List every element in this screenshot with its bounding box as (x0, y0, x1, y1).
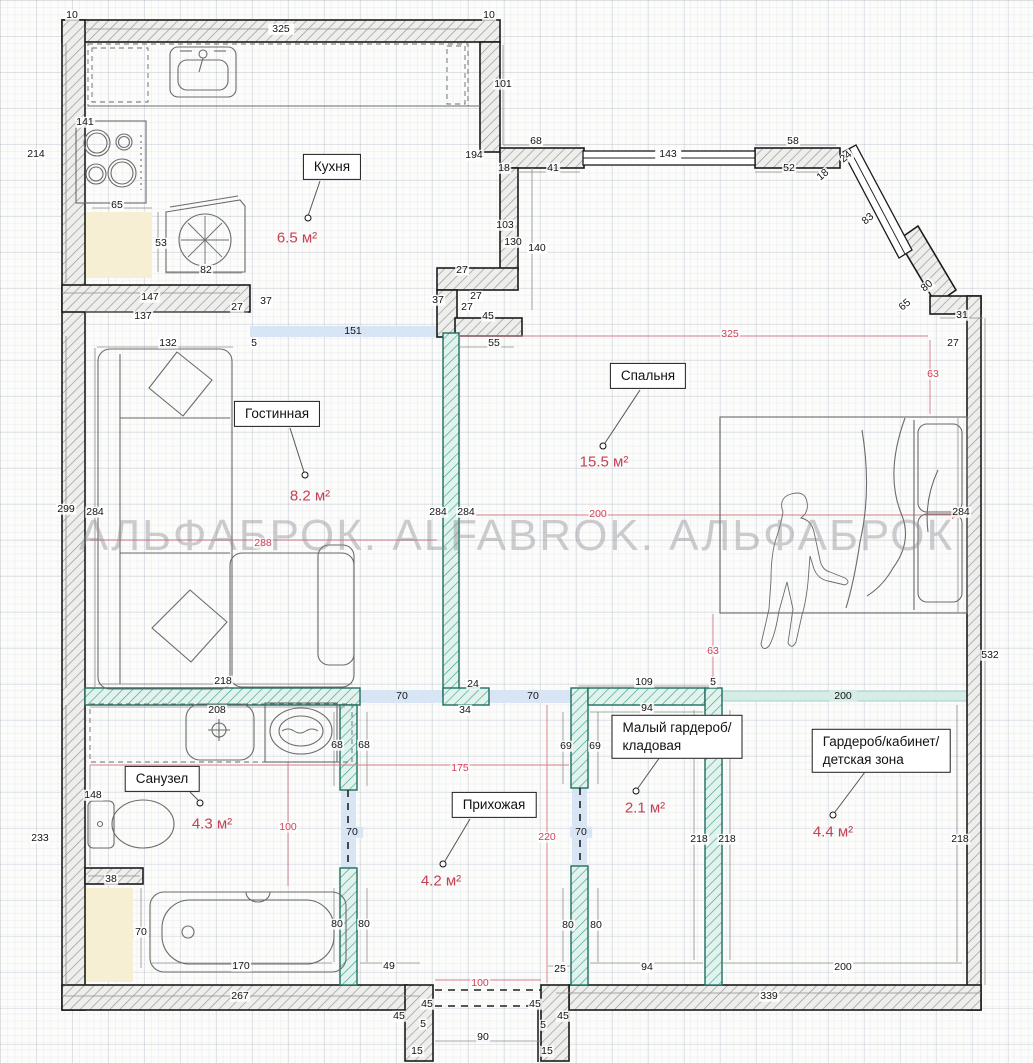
room-area-label: 6.5 м² (277, 230, 317, 247)
door-openings (348, 788, 580, 1006)
dimension-label: 5 (709, 677, 717, 688)
dimension-label: 325 (720, 329, 740, 340)
room-name-label: Кухня (303, 154, 361, 180)
diagonal-window (843, 145, 912, 258)
dimension-label: 80 (589, 920, 603, 931)
dimension-label: 94 (640, 703, 654, 714)
room-area-label: 4.4 м² (813, 824, 853, 841)
room-area-label: 2.1 м² (625, 800, 665, 817)
dimension-label: 45 (392, 1011, 406, 1022)
dimension-label: 55 (487, 338, 501, 349)
dimension-label: 15 (410, 1046, 424, 1057)
dimension-label: 109 (634, 677, 654, 688)
room-name-label: Санузел (125, 766, 200, 792)
dimension-label: 80 (330, 919, 344, 930)
dimension-label: 284 (85, 507, 105, 518)
room-name-label: Прихожая (452, 792, 537, 818)
dimension-label: 288 (253, 538, 273, 549)
floor-plan-drawing (0, 0, 1033, 1063)
dimension-label: 68 (529, 136, 543, 147)
dimension-label: 299 (56, 504, 76, 515)
dimension-label: 101 (493, 79, 513, 90)
dimension-label: 284 (456, 507, 476, 518)
dimension-label: 130 (503, 237, 523, 248)
dimension-label: 5 (419, 1019, 427, 1030)
room-name-label: Спальня (610, 363, 686, 389)
exterior-walls (62, 20, 981, 1061)
room-name-label: Гостинная (234, 401, 320, 427)
dimension-label: 38 (104, 874, 118, 885)
dimension-label: 80 (357, 919, 371, 930)
dimension-label: 27 (230, 302, 244, 313)
dimension-label: 82 (199, 265, 213, 276)
dimension-label: 27 (469, 291, 483, 302)
dimension-label: 52 (782, 163, 796, 174)
dimension-label: 45 (556, 1011, 570, 1022)
dimension-label: 214 (26, 149, 46, 160)
dimension-label: 218 (717, 834, 737, 845)
dimension-label: 200 (588, 509, 608, 520)
dimension-label: 284 (951, 507, 971, 518)
dimension-label: 200 (833, 962, 853, 973)
dimension-label: 218 (950, 834, 970, 845)
dimension-label: 45 (420, 999, 434, 1010)
dimension-label: 37 (431, 295, 445, 306)
dimension-label: 45 (481, 311, 495, 322)
dimension-label: 63 (706, 646, 720, 657)
dimension-label: 31 (955, 310, 969, 321)
dimension-label: 49 (382, 961, 396, 972)
dimension-label: 58 (786, 136, 800, 147)
stove (76, 121, 146, 203)
dimension-label: 37 (259, 296, 273, 307)
dimension-label: 70 (341, 827, 363, 838)
dimension-label: 63 (926, 369, 940, 380)
partition-walls (85, 333, 722, 985)
windows (583, 145, 912, 258)
washing-machine (265, 703, 337, 762)
dimension-label: 10 (65, 10, 79, 21)
dimension-label: 339 (759, 991, 779, 1002)
dimension-label: 147 (140, 292, 160, 303)
dimension-label: 15 (540, 1046, 554, 1057)
dimension-label: 70 (570, 827, 592, 838)
dimension-label: 170 (231, 961, 251, 972)
dimension-label: 94 (640, 962, 654, 973)
blanket (867, 418, 906, 596)
dimension-label: 233 (30, 833, 50, 844)
person-figure (761, 493, 848, 649)
dimension-label: 325 (268, 24, 294, 35)
dimension-label: 132 (158, 338, 178, 349)
dimension-label: 175 (450, 763, 470, 774)
dimension-label: 103 (495, 220, 515, 231)
floor-plan: АЛЬФАБРОК. ALFABROK. АЛЬФАБРОК Кухня6.5 … (0, 0, 1033, 1063)
dimension-label: 220 (537, 832, 557, 843)
room-leaders (190, 181, 865, 867)
dimension-label: 70 (134, 927, 148, 938)
room-area-label: 4.3 м² (192, 816, 232, 833)
room-area-label: 15.5 м² (580, 454, 629, 471)
dimension-label: 69 (588, 741, 602, 752)
dimension-label: 151 (339, 326, 367, 337)
dimension-label: 90 (476, 1032, 490, 1043)
dimension-label: 137 (133, 311, 153, 322)
dimension-label: 143 (655, 149, 681, 160)
kitchen-sink (170, 47, 236, 97)
dimension-label: 200 (829, 691, 857, 702)
dimension-label: 532 (980, 650, 1000, 661)
dimension-label: 41 (546, 163, 560, 174)
dimension-label: 27 (455, 265, 469, 276)
bed-pillow (918, 514, 962, 602)
bed-pillow (918, 424, 962, 512)
room-name-label: Малый гардероб/ кладовая (612, 715, 743, 759)
dimension-label: 53 (154, 238, 168, 249)
dimension-label: 68 (357, 740, 371, 751)
room-name-label: Гардероб/кабинет/ детская зона (812, 729, 951, 773)
dimension-label: 141 (75, 117, 95, 128)
kitchen-appliance (166, 196, 245, 272)
red-dimension-lines (90, 336, 961, 983)
toilet (88, 800, 174, 848)
dimension-label: 27 (460, 302, 474, 313)
dimension-label: 68 (330, 740, 344, 751)
dimension-label: 5 (539, 1020, 547, 1031)
dimension-label: 267 (230, 991, 250, 1002)
dimension-label: 18 (497, 163, 511, 174)
room-area-label: 4.2 м² (421, 873, 461, 890)
kitchen-counter (88, 44, 468, 106)
dimension-label: 140 (527, 243, 547, 254)
dimension-label: 100 (278, 822, 298, 833)
dimension-label: 194 (464, 150, 484, 161)
dimension-label: 45 (528, 999, 542, 1010)
dimension-label: 65 (110, 200, 124, 211)
room-area-label: 8.2 м² (290, 488, 330, 505)
dimension-label: 34 (458, 705, 472, 716)
dimension-label: 25 (553, 964, 567, 975)
dimension-label: 24 (466, 679, 480, 690)
dimension-label: 218 (689, 834, 709, 845)
sofa-pillow (152, 590, 227, 662)
dimension-label: 27 (946, 338, 960, 349)
sofa-pillow (149, 352, 212, 416)
dimension-label: 80 (561, 920, 575, 931)
dimension-label: 100 (470, 978, 490, 989)
dimension-label: 70 (522, 691, 544, 702)
dimension-label: 218 (213, 676, 233, 687)
dimension-label: 69 (559, 741, 573, 752)
dimension-label: 148 (83, 790, 103, 801)
dimension-lines (62, 29, 985, 1041)
dimension-label: 284 (428, 507, 448, 518)
dimension-label: 70 (391, 691, 413, 702)
dimension-label: 5 (250, 338, 258, 349)
dimension-label: 10 (482, 10, 496, 21)
dimension-label: 208 (207, 705, 227, 716)
